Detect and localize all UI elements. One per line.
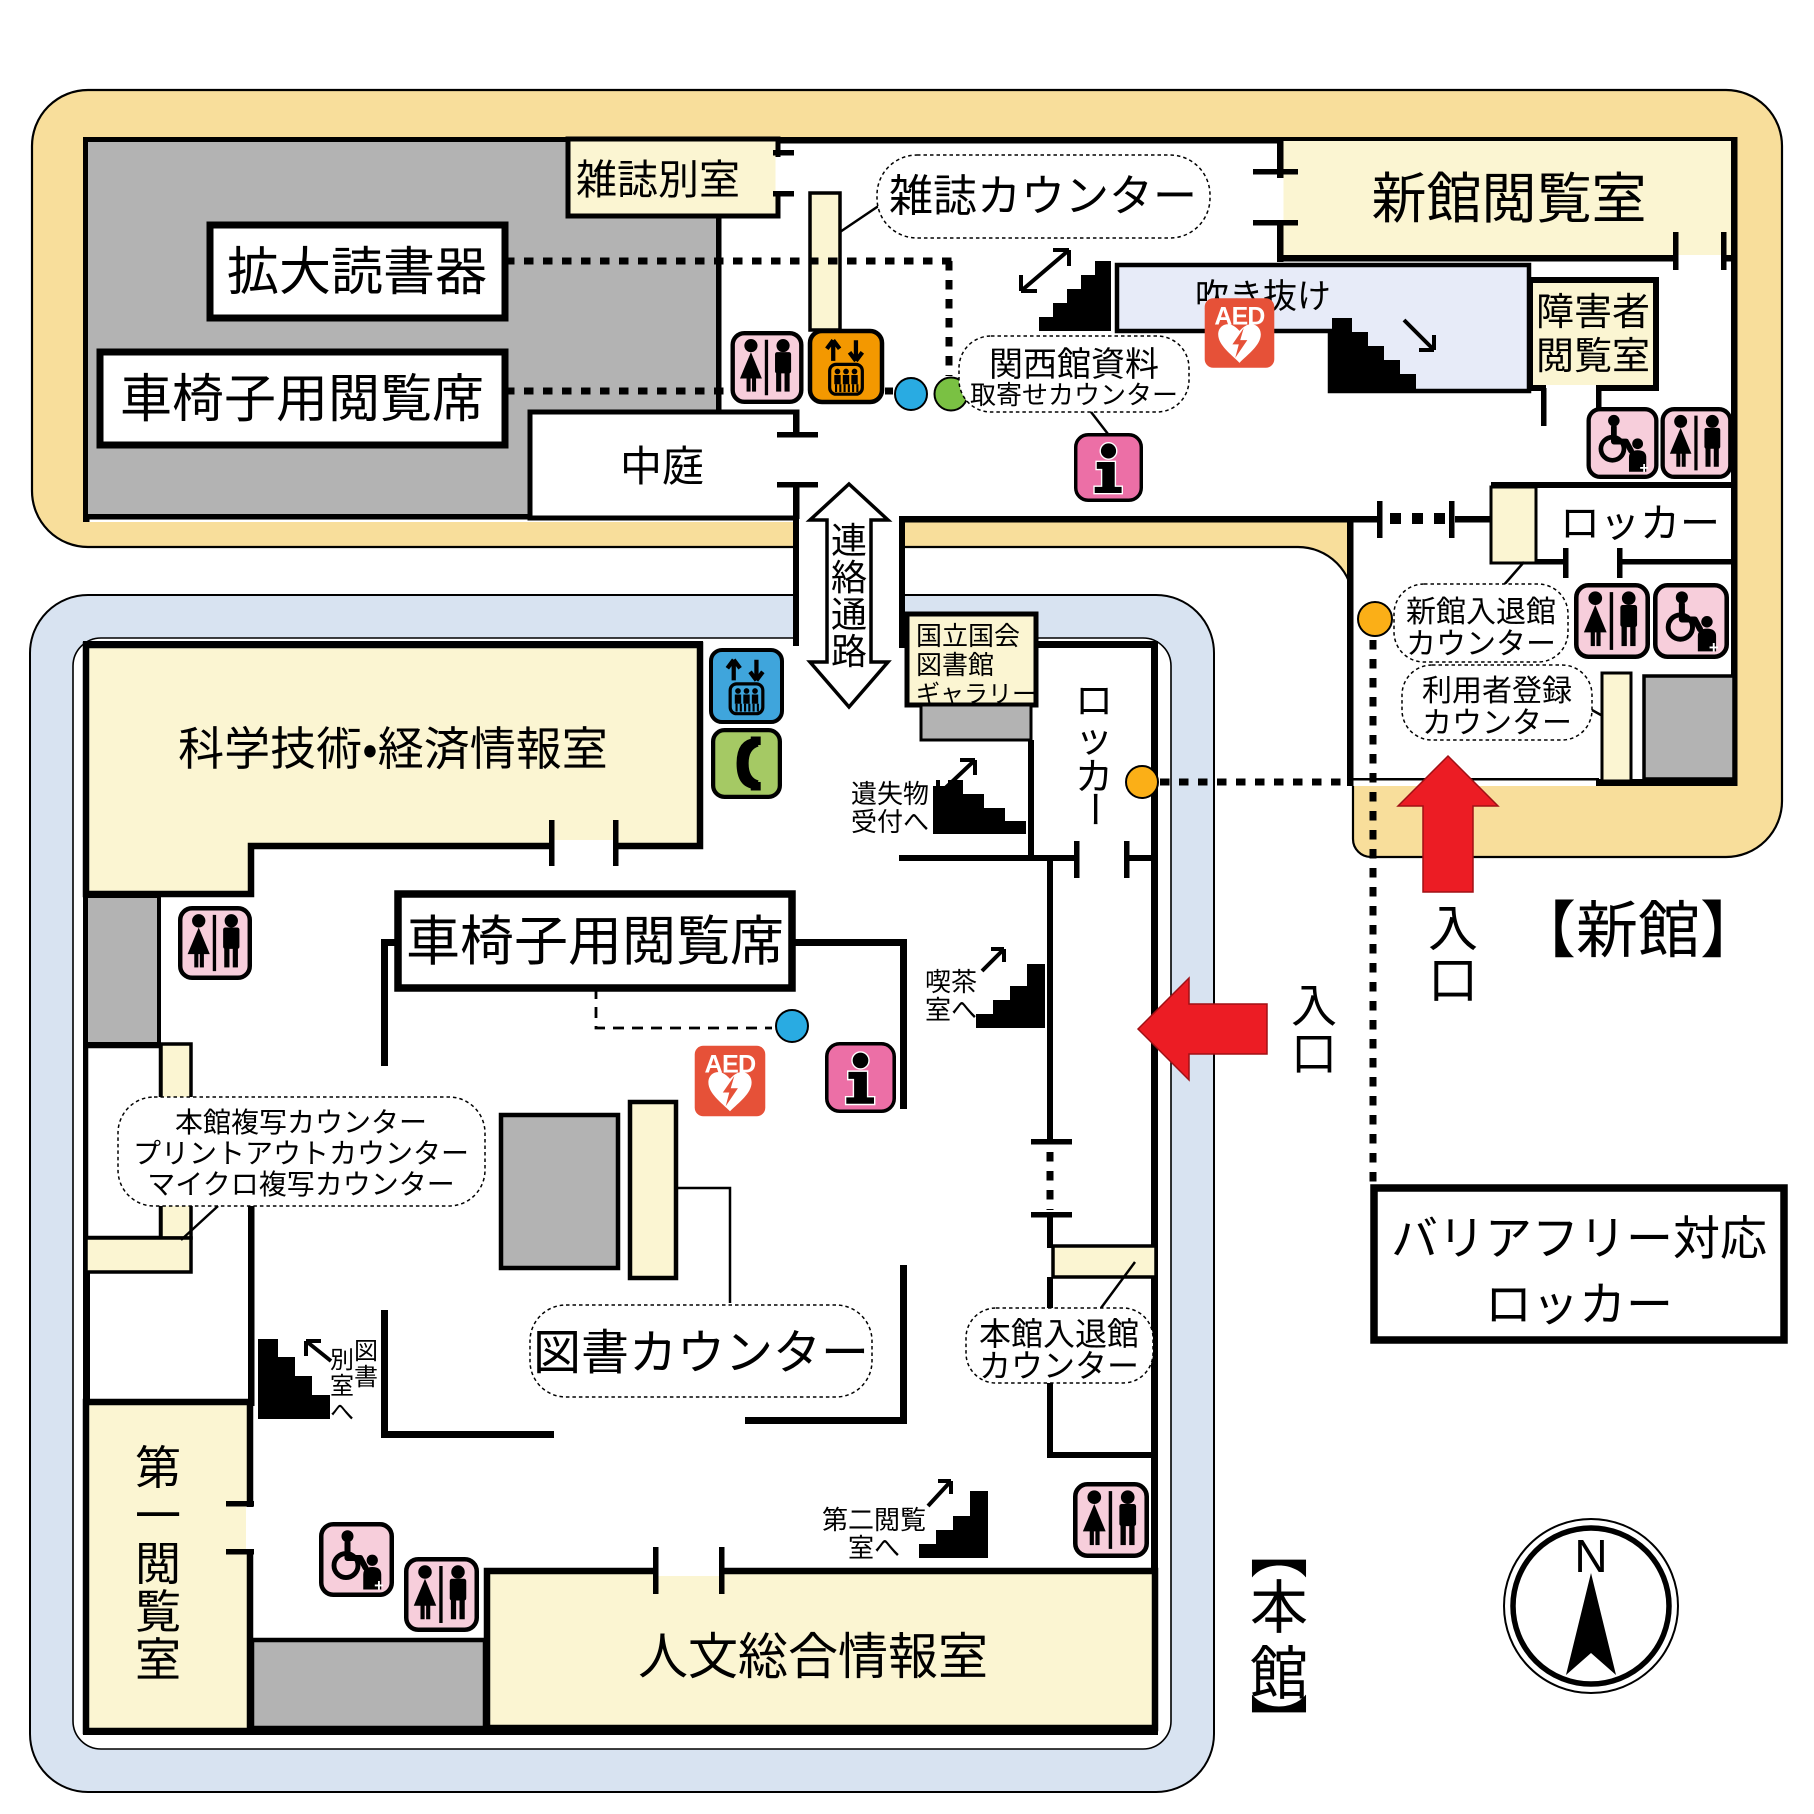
svg-text:本: 本 xyxy=(1250,1576,1308,1641)
svg-text:口: 口 xyxy=(1291,1028,1337,1080)
svg-text:新館閲覧室: 新館閲覧室 xyxy=(1371,168,1646,230)
svg-text:マイクロ複写カウンター: マイクロ複写カウンター xyxy=(147,1169,454,1200)
svg-text:本館入退館: 本館入退館 xyxy=(979,1316,1139,1352)
svg-text:ロ: ロ xyxy=(1075,681,1113,723)
svg-text:室: 室 xyxy=(135,1634,181,1686)
svg-text:雑誌別室: 雑誌別室 xyxy=(576,157,740,203)
svg-text:【新館】: 【新館】 xyxy=(1514,897,1762,966)
svg-text:連: 連 xyxy=(831,520,867,561)
svg-text:喫茶: 喫茶 xyxy=(925,967,977,997)
svg-text:書: 書 xyxy=(354,1364,378,1391)
svg-text:第: 第 xyxy=(135,1442,181,1494)
svg-text:入: 入 xyxy=(1428,901,1478,957)
svg-text:ロッカー: ロッカー xyxy=(1485,1278,1673,1331)
svg-text:車椅子用閲覧席: 車椅子用閲覧席 xyxy=(120,371,484,429)
svg-text:路: 路 xyxy=(831,631,867,672)
svg-text:新館入退館: 新館入退館 xyxy=(1406,596,1556,629)
svg-text:覧: 覧 xyxy=(135,1586,181,1638)
svg-text:人文総合情報室: 人文総合情報室 xyxy=(638,1629,988,1685)
svg-text:入: 入 xyxy=(1291,980,1337,1032)
svg-text:閲覧室: 閲覧室 xyxy=(1536,336,1650,378)
svg-text:口: 口 xyxy=(1428,953,1478,1009)
svg-text:ロッカー: ロッカー xyxy=(1560,502,1720,546)
svg-text:室: 室 xyxy=(330,1373,354,1400)
svg-text:室へ: 室へ xyxy=(925,995,977,1025)
svg-text:第二閲覧: 第二閲覧 xyxy=(822,1505,926,1535)
svg-text:別: 別 xyxy=(330,1347,354,1374)
svg-text:一: 一 xyxy=(135,1490,181,1542)
svg-text:図書館: 図書館 xyxy=(916,650,994,680)
svg-text:関西館資料: 関西館資料 xyxy=(989,346,1159,384)
svg-text:室へ: 室へ xyxy=(848,1533,900,1563)
svg-text:ッ: ッ xyxy=(1075,719,1113,761)
svg-text:︼: ︼ xyxy=(1250,1692,1308,1757)
svg-text:絡: 絡 xyxy=(831,557,867,598)
svg-text:科学技術・経済情報室: 科学技術・経済情報室 xyxy=(178,723,608,775)
svg-text:閲: 閲 xyxy=(135,1538,181,1590)
svg-text:ー: ー xyxy=(1072,790,1114,828)
svg-text:受付へ: 受付へ xyxy=(851,807,929,837)
svg-text:遺失物: 遺失物 xyxy=(851,779,929,809)
svg-text:取寄せカウンター: 取寄せカウンター xyxy=(970,380,1178,410)
svg-text:へ: へ xyxy=(330,1399,354,1426)
svg-text:国立国会: 国立国会 xyxy=(916,621,1020,651)
svg-text:バリアフリー対応: バリアフリー対応 xyxy=(1391,1212,1767,1265)
svg-text:カウンター: カウンター xyxy=(979,1348,1139,1384)
svg-text:利用者登録: 利用者登録 xyxy=(1422,675,1572,708)
svg-text:車椅子用閲覧席: 車椅子用閲覧席 xyxy=(406,912,784,972)
svg-text:プリントアウトカウンター: プリントアウトカウンター xyxy=(133,1138,469,1169)
svg-text:雑誌カウンター: 雑誌カウンター xyxy=(889,172,1197,221)
svg-text:障害者: 障害者 xyxy=(1536,292,1650,334)
svg-text:通: 通 xyxy=(831,594,867,635)
svg-text:図書カウンター: 図書カウンター xyxy=(533,1327,869,1380)
svg-text:図: 図 xyxy=(354,1338,378,1365)
svg-text:本館複写カウンター: 本館複写カウンター xyxy=(175,1107,427,1138)
svg-text:カウンター: カウンター xyxy=(1422,707,1572,740)
svg-text:カウンター: カウンター xyxy=(1406,628,1556,661)
svg-text:拡大読書器: 拡大読書器 xyxy=(227,244,487,302)
svg-text:中庭: 中庭 xyxy=(620,443,704,490)
